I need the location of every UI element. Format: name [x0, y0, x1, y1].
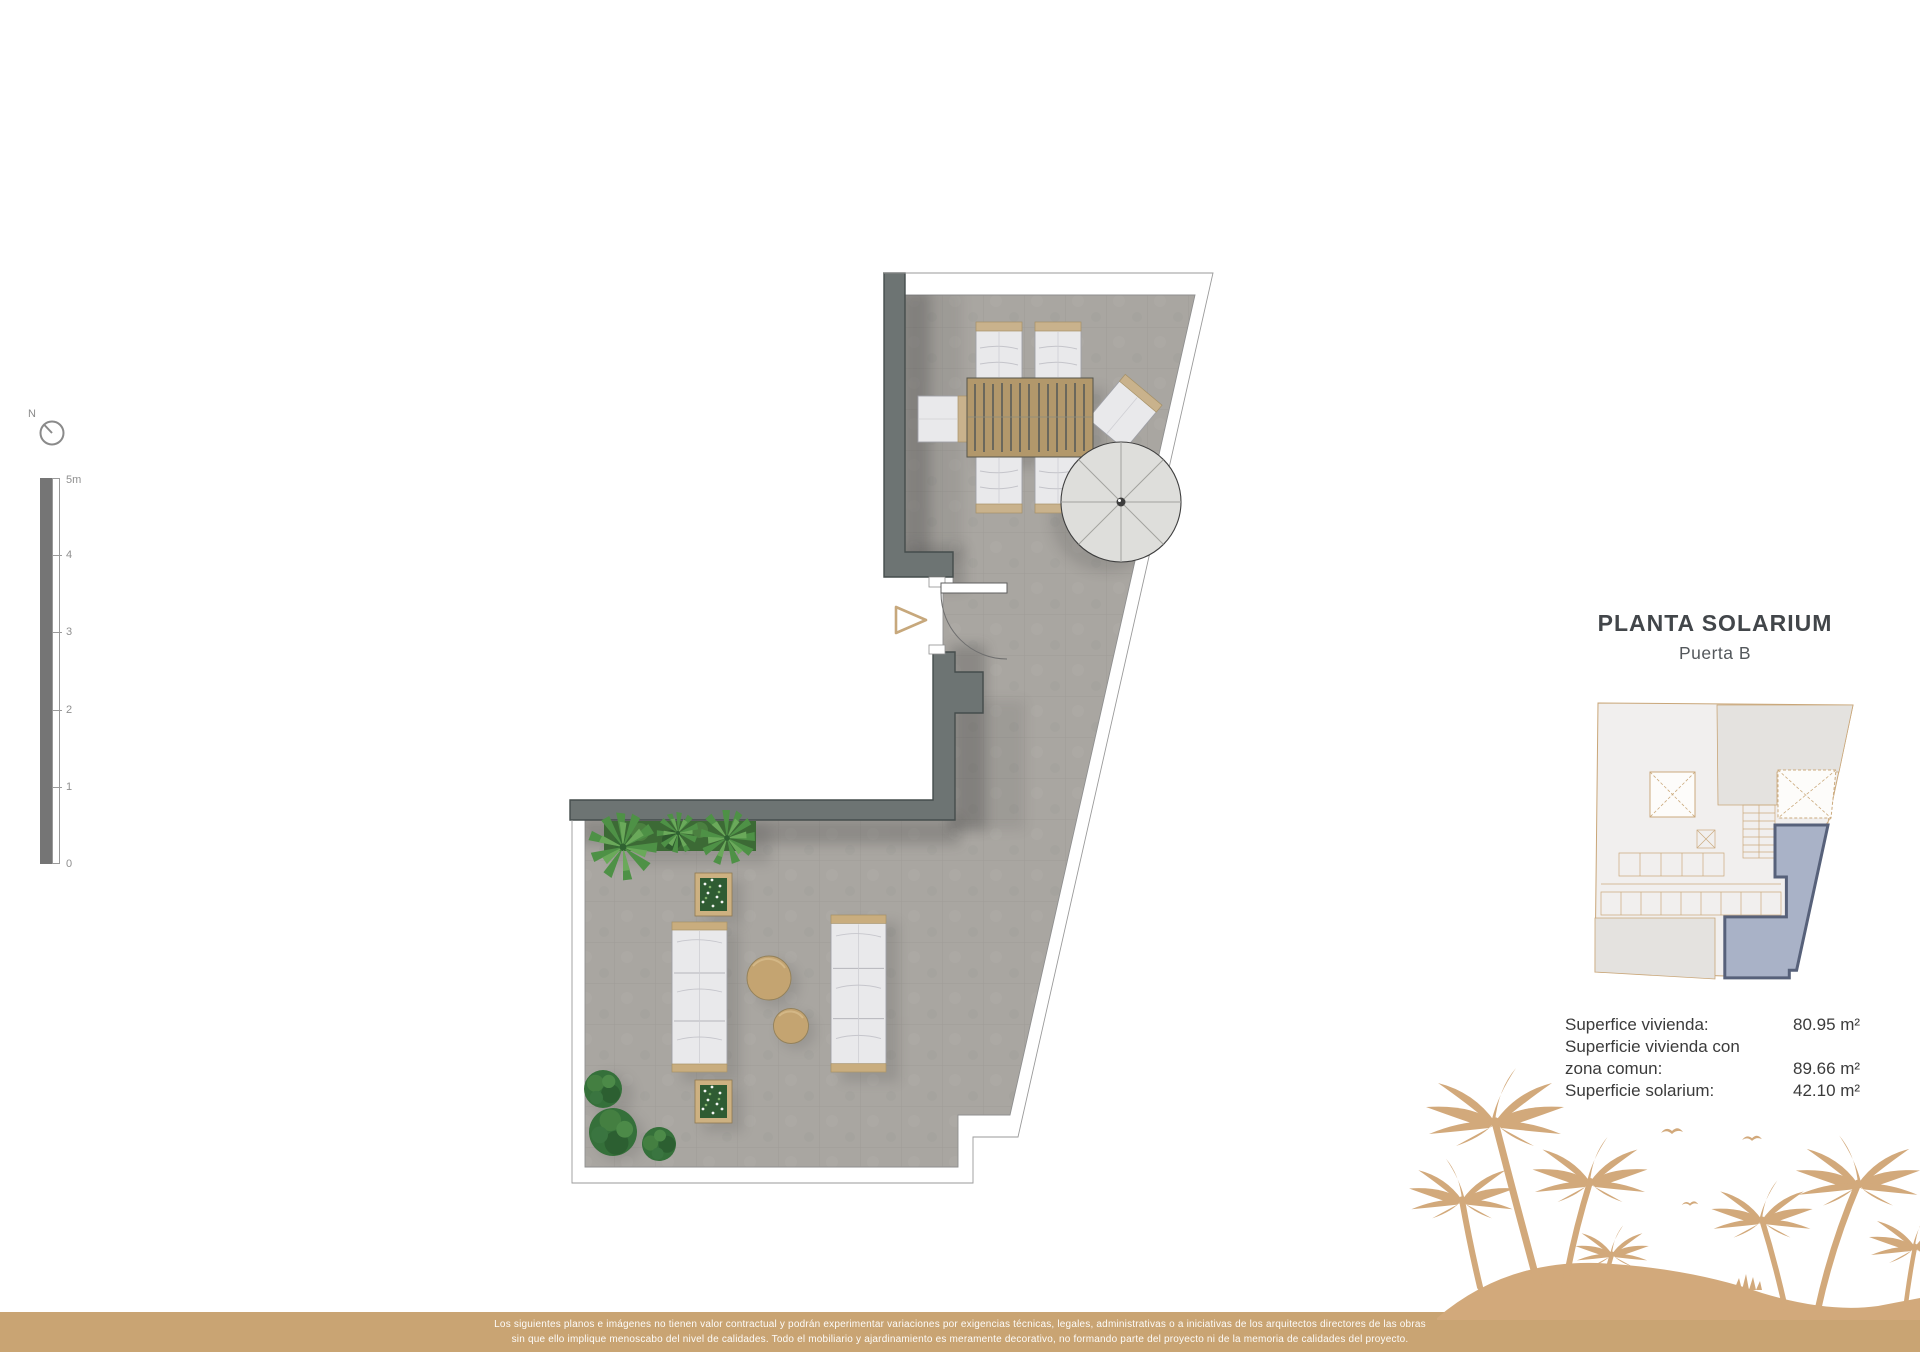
scale-label-4: 4: [66, 549, 72, 561]
door-leaf: [941, 583, 1007, 593]
wall-lower-left: [570, 652, 983, 820]
sun-lounger: [831, 915, 886, 1072]
dining-chair: [976, 457, 1022, 513]
dining-chair: [976, 322, 1022, 378]
parasol-umbrella: [1061, 442, 1181, 562]
scale-label-2: 2: [66, 704, 72, 716]
bird-icon: [1682, 1201, 1699, 1205]
palm-beach-graphic: [1409, 1068, 1920, 1320]
key-plan-shaft: [1778, 770, 1836, 818]
scale-label-1: 1: [66, 781, 72, 793]
scale-bar-outline: [52, 478, 60, 864]
bush-plant: [584, 1070, 622, 1108]
area-label: Superfice vivienda:: [1565, 1014, 1765, 1036]
key-plan-shaft: [1650, 772, 1695, 817]
compass-north-label: N: [28, 408, 36, 420]
scale-label-5m: 5m: [66, 474, 81, 486]
page-title: PLANTA SOLARIUM: [1570, 610, 1860, 637]
dining-table: [967, 378, 1093, 457]
flower-planter: [695, 873, 732, 916]
floorplan-page: { "header": { "title": "PLANTA SOLARIUM"…: [0, 0, 1920, 1370]
key-plan-common-area-bottom: [1595, 918, 1715, 979]
scale-bar-fill: [40, 478, 52, 864]
beach-mound: [1437, 1263, 1920, 1320]
area-row: Superfice vivienda: 80.95 m²: [1565, 1014, 1895, 1036]
area-label: Superficie vivienda con zona comun:: [1565, 1036, 1765, 1080]
page-subtitle: Puerta B: [1570, 643, 1860, 664]
round-side-table: [747, 956, 791, 1000]
area-value: 89.66 m²: [1793, 1058, 1860, 1080]
door-jamb-bottom: [929, 645, 945, 654]
scale-label-3: 3: [66, 626, 72, 638]
main-floor-plan: [570, 273, 1213, 1183]
title-block: PLANTA SOLARIUM Puerta B: [1570, 610, 1860, 664]
area-row: Superficie solarium: 42.10 m²: [1565, 1080, 1895, 1102]
surface-areas: Superfice vivienda: 80.95 m² Superficie …: [1565, 1014, 1895, 1102]
sun-lounger: [672, 922, 727, 1072]
north-compass-icon: [41, 422, 64, 445]
area-label: Superficie solarium:: [1565, 1080, 1765, 1102]
bird-icon: [1742, 1136, 1762, 1141]
floor-plan-canvas: [0, 0, 1920, 1370]
area-row: Superficie vivienda con zona comun: 89.6…: [1565, 1036, 1895, 1080]
key-plan: [1595, 703, 1853, 979]
flower-planter: [695, 1080, 732, 1123]
entrance-arrow-icon: [896, 607, 926, 633]
round-side-table: [774, 1009, 809, 1044]
scale-label-0: 0: [66, 858, 72, 870]
bird-icon: [1661, 1128, 1683, 1134]
area-value: 80.95 m²: [1793, 1014, 1860, 1036]
area-value: 42.10 m²: [1793, 1080, 1860, 1102]
dining-chair: [1035, 322, 1081, 378]
